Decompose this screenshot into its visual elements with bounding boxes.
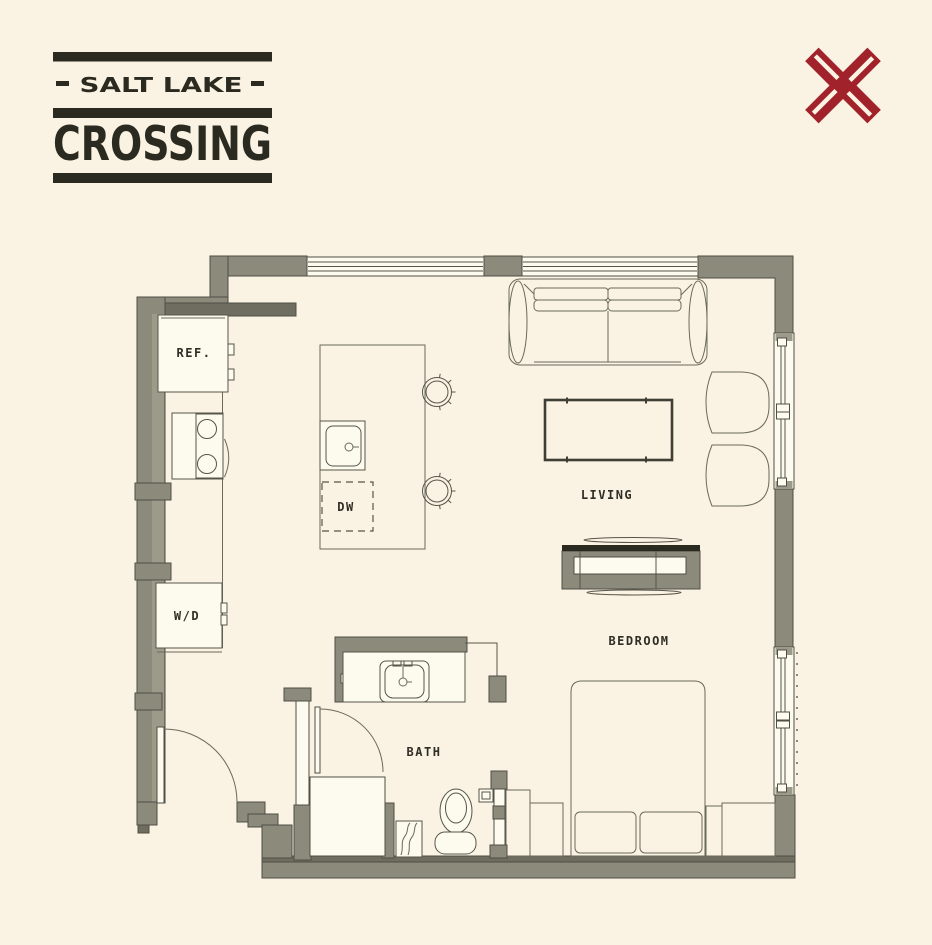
wall-entry-step-3 [262,825,292,858]
wall-hall-lower [294,805,311,860]
logo-bar-bottom [53,173,272,183]
bath-closet [310,777,385,856]
logo-dash-left [56,81,69,86]
media-divider-wall [562,538,700,596]
wall-top-mullion [484,256,522,276]
window-living [774,333,794,489]
wall-top-right-corner [698,256,793,335]
fixture-label-washer-dryer: W/D [174,609,200,623]
logo-dash-right [251,81,264,86]
wall-left-pier-1 [135,483,171,500]
wall-right-middle [775,487,793,647]
wall-left-pier-3 [135,693,162,710]
brand-name-top: SALT LAKE [80,73,243,97]
toilet-paper-holder [479,789,493,802]
entry-door [157,727,237,803]
brand-x-icon [781,23,905,147]
entry-door-leaf [157,727,164,803]
sofa [509,279,707,365]
lounge-chair [706,445,769,506]
pillow [575,812,636,853]
toilet [435,789,476,854]
living-room: LIVING [509,279,769,506]
bedside-bench [506,790,530,856]
divider-trim-top [584,538,682,543]
window-top-right [522,257,698,276]
logo-bar-top [53,52,272,62]
refrigerator: REF. [158,315,234,392]
divider-trim-bottom [587,590,681,595]
flyer-page: SALT LAKE CROSSING [0,0,932,945]
nightstand-left [530,803,563,856]
window-top-left [307,257,484,276]
wall-bottom-edge [262,856,795,862]
kitchen-island: DW [320,345,425,549]
kitchen-upper-cabinet [162,303,296,316]
fixture-label-dishwasher: DW [337,500,354,514]
bar-stool [423,374,456,410]
room-label-living: LIVING [581,488,633,502]
wall-hall-pocket [296,701,309,805]
bath-door [315,707,383,773]
bar-stool [423,473,456,509]
kitchen: REF. W/D [156,315,456,652]
lounge-chair [706,372,769,433]
floor-plan: REF. W/D [135,256,797,878]
coffee-table [545,398,672,463]
divider-dark-edge [562,545,700,551]
pillow [640,812,702,853]
fixture-label-refrigerator: REF. [177,346,212,360]
nightstand-right [722,803,775,856]
brand-logo: SALT LAKE CROSSING [53,52,272,183]
room-label-bedroom: BEDROOM [608,634,669,648]
range [172,413,229,479]
wall-left-pier-2 [135,563,171,580]
window-bedroom [774,647,797,795]
bedroom: BEDROOM [506,634,775,856]
shower-pan [396,821,422,857]
entry-door-swing [164,729,237,802]
washer-dryer: W/D [156,583,227,652]
vanity [343,652,465,702]
bedside-bench [706,806,722,856]
wall-left-foot [138,825,149,833]
sliding-door [465,643,507,858]
divider-niche [574,557,686,574]
wall-hall-cap [284,688,311,701]
brand-name-bottom: CROSSING [53,117,272,172]
room-label-bath: BATH [407,745,442,759]
wall-left-bottom [137,802,157,825]
